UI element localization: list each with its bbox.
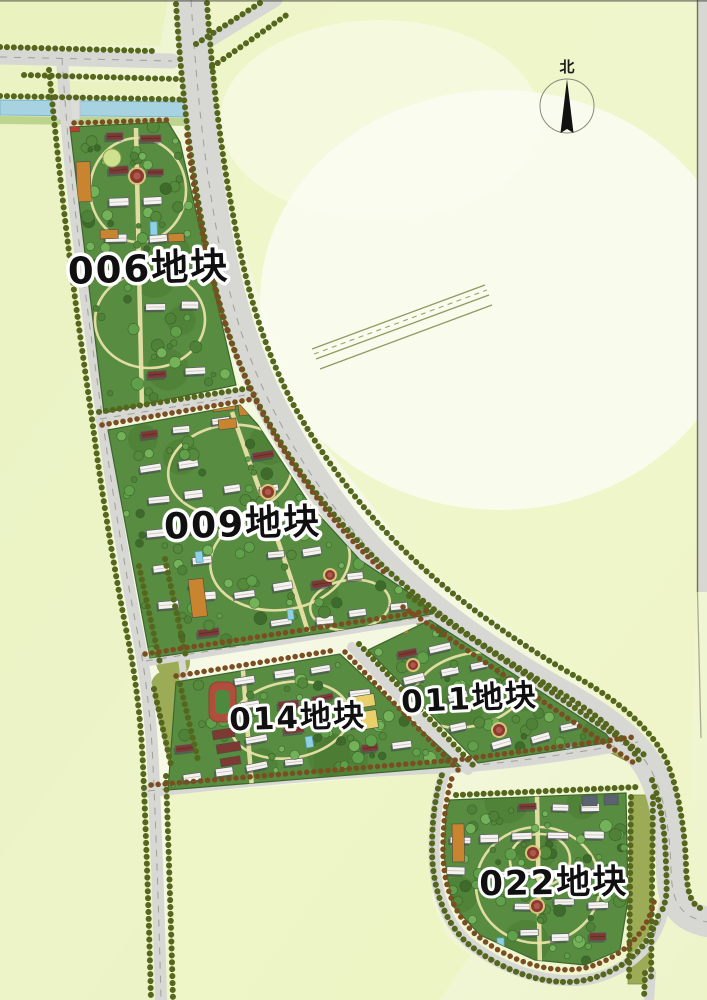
tree <box>139 532 146 539</box>
building <box>183 367 206 377</box>
tree <box>313 681 323 691</box>
building <box>588 933 606 943</box>
tree <box>220 369 230 379</box>
tree <box>261 468 273 480</box>
tree <box>184 314 191 321</box>
field-patch <box>0 0 168 46</box>
tree <box>466 824 476 834</box>
tree <box>251 469 257 475</box>
building <box>266 551 285 561</box>
tree <box>224 579 233 588</box>
tree <box>526 718 538 730</box>
tree <box>287 550 297 560</box>
tree <box>315 598 324 607</box>
building <box>139 135 162 144</box>
tree <box>88 147 93 152</box>
tree <box>199 469 206 476</box>
tree <box>135 539 143 547</box>
building <box>582 831 604 841</box>
tree <box>179 612 186 619</box>
tree <box>600 820 613 833</box>
tree <box>352 752 364 764</box>
pool <box>195 551 203 563</box>
tree <box>609 828 621 840</box>
tree <box>296 494 303 501</box>
street-tree-row <box>651 797 653 982</box>
building <box>146 169 164 177</box>
tree <box>474 717 485 728</box>
plaza-center <box>530 850 536 856</box>
tree <box>545 822 551 828</box>
tree <box>365 735 377 747</box>
building <box>518 929 538 938</box>
tree <box>246 691 254 699</box>
tree <box>549 945 556 952</box>
tree <box>171 326 182 337</box>
tree <box>247 576 258 587</box>
tree <box>102 210 113 221</box>
tree <box>544 712 554 722</box>
tree <box>575 935 582 942</box>
tree <box>260 693 267 700</box>
tree <box>284 686 290 692</box>
pool <box>305 736 314 748</box>
tree <box>297 678 308 689</box>
tree <box>167 344 172 349</box>
tree <box>98 313 105 320</box>
north-label: 北 <box>559 58 574 76</box>
tree <box>379 732 386 739</box>
plaza-center <box>410 662 415 667</box>
building <box>478 834 498 844</box>
tree <box>332 597 343 608</box>
tree <box>369 753 374 758</box>
parcel-label-011: 011地块 <box>400 677 538 720</box>
tree <box>521 733 527 739</box>
tree <box>108 220 114 226</box>
tree <box>123 511 129 517</box>
tree <box>249 598 260 609</box>
building <box>171 426 191 436</box>
tree <box>182 443 188 449</box>
building <box>550 933 569 943</box>
street-tree-row <box>644 973 645 1000</box>
canal <box>0 100 188 117</box>
tree <box>130 152 138 160</box>
tree <box>128 323 139 334</box>
building <box>147 234 167 245</box>
tree <box>137 233 148 244</box>
tree <box>165 313 176 324</box>
tree <box>159 222 165 228</box>
tree <box>136 223 141 228</box>
tree <box>281 564 288 571</box>
building <box>517 803 537 812</box>
tree <box>211 372 216 377</box>
tree <box>542 811 548 817</box>
tree <box>174 152 181 159</box>
building <box>510 832 532 842</box>
tree <box>512 715 520 723</box>
field-highlight <box>220 20 540 220</box>
tree <box>335 662 340 667</box>
tree <box>585 943 592 950</box>
tree <box>204 378 213 387</box>
tree <box>336 740 341 745</box>
tree <box>254 612 267 625</box>
parcel-label-006: 006地块 <box>67 244 230 293</box>
tree <box>124 295 132 303</box>
tree <box>507 930 518 941</box>
tree <box>505 849 516 860</box>
tree <box>521 842 527 848</box>
tree <box>204 620 214 630</box>
tree <box>117 432 126 441</box>
tree <box>279 746 285 752</box>
tree <box>349 741 360 752</box>
tree <box>177 565 187 575</box>
plaza-center <box>327 572 332 577</box>
tree <box>318 606 330 618</box>
tree <box>489 811 499 821</box>
plaza-center <box>133 172 140 179</box>
pool <box>150 222 157 235</box>
parcel-label-022: 022地块 <box>479 862 629 905</box>
tree <box>151 354 156 359</box>
tree <box>269 753 276 760</box>
tree <box>508 808 513 813</box>
field-patch <box>166 772 470 1000</box>
tree <box>423 749 429 755</box>
building <box>144 304 166 313</box>
feature-building <box>452 824 465 862</box>
image-top-border <box>0 0 707 2</box>
plaza-center <box>534 903 540 909</box>
building <box>445 867 465 877</box>
tree <box>586 923 595 932</box>
tree <box>620 844 627 851</box>
tree <box>378 752 386 760</box>
tree <box>157 348 167 358</box>
feature-building <box>604 795 618 805</box>
site-plan-map: 006地块 009地块 014地块 011地块 022地块 北 <box>0 0 707 1000</box>
tree <box>179 449 190 460</box>
plaza-center <box>265 489 271 495</box>
tree <box>193 680 204 691</box>
tree <box>82 210 95 223</box>
tree <box>553 904 565 916</box>
tree <box>134 451 144 461</box>
garden-circle <box>103 149 121 167</box>
tree <box>144 449 153 458</box>
feature-building <box>100 229 118 239</box>
tree <box>396 661 408 673</box>
tree <box>124 486 134 496</box>
tree <box>576 835 585 844</box>
tree <box>288 592 295 599</box>
tree <box>190 341 202 353</box>
tree <box>245 485 253 493</box>
feature-building <box>582 796 597 806</box>
tree <box>131 476 137 482</box>
building <box>146 370 167 381</box>
tree <box>445 676 450 681</box>
building <box>180 301 199 311</box>
tree <box>531 824 539 832</box>
feature-building <box>218 418 237 430</box>
tree <box>86 136 97 147</box>
plaza-center <box>496 727 502 733</box>
tree <box>107 390 113 396</box>
tree <box>490 847 496 853</box>
tree <box>375 648 383 656</box>
building <box>586 902 608 911</box>
tree <box>383 711 394 722</box>
tree <box>176 176 183 183</box>
tree <box>151 211 162 222</box>
tree <box>203 545 213 555</box>
tree <box>139 153 147 161</box>
tree <box>467 805 477 815</box>
tree <box>143 160 153 170</box>
tree <box>588 915 594 921</box>
tree <box>169 356 180 367</box>
building <box>107 198 129 209</box>
street-tree-row <box>629 797 631 982</box>
site-plan-page: 006地块 009地块 014地块 011地块 022地块 北 <box>0 0 707 1000</box>
building-ridge <box>513 836 531 837</box>
tree <box>167 448 173 454</box>
tree <box>450 660 458 668</box>
tree <box>172 138 178 144</box>
tree <box>149 393 158 402</box>
building <box>104 133 123 143</box>
tree <box>184 201 192 209</box>
road-right-edge <box>698 0 707 592</box>
tree <box>537 917 543 923</box>
tree <box>245 439 255 449</box>
tree <box>131 378 144 391</box>
parcel-label-014: 014地块 <box>229 698 367 739</box>
tree <box>217 613 222 618</box>
tree <box>468 741 478 751</box>
tree <box>596 854 602 860</box>
building <box>551 804 569 813</box>
parcel-label-009: 009地块 <box>163 501 321 547</box>
tree <box>339 563 345 569</box>
tree <box>580 734 585 739</box>
tree <box>160 183 172 195</box>
tree <box>184 230 191 237</box>
tree <box>468 915 477 924</box>
feature-building <box>168 233 184 242</box>
tree <box>460 880 471 891</box>
building <box>546 832 569 841</box>
tree <box>136 509 145 518</box>
building <box>141 197 162 208</box>
tree <box>413 748 421 756</box>
tree <box>375 581 386 592</box>
tree <box>326 542 331 547</box>
tree <box>347 735 354 742</box>
tree <box>564 953 570 959</box>
pool <box>287 609 294 620</box>
tree <box>290 750 299 759</box>
tree <box>286 599 292 605</box>
tree <box>93 305 99 311</box>
tree <box>173 202 184 213</box>
tree <box>235 549 245 559</box>
tree <box>198 721 205 728</box>
feature-building <box>76 162 91 202</box>
tree <box>245 457 250 462</box>
